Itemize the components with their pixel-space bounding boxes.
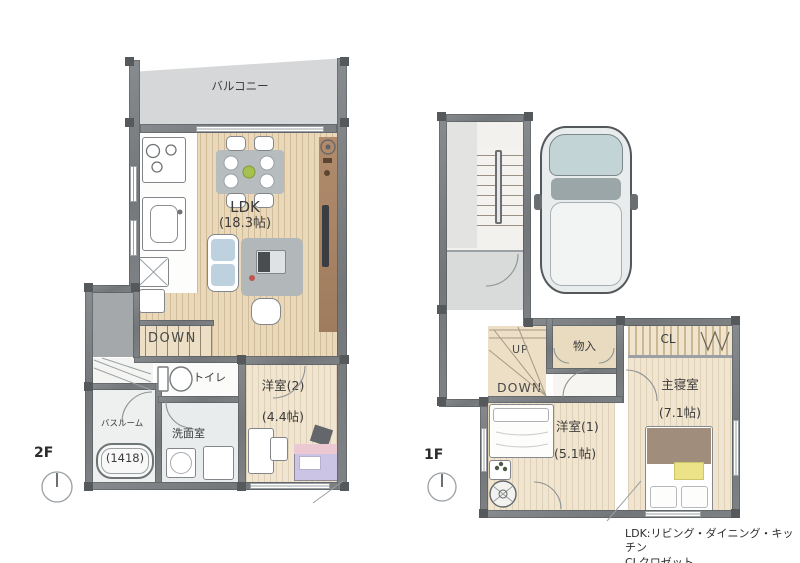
kitchen-cabinet2-icon: [139, 289, 165, 313]
wall-post: [437, 112, 446, 121]
wall: [133, 290, 140, 358]
wall: [523, 318, 740, 326]
window: [130, 166, 137, 202]
wall: [488, 396, 623, 403]
wall: [90, 383, 158, 390]
wall-post: [340, 482, 349, 491]
ldk-label: LDK: [195, 199, 295, 216]
stairs-up-label: UP: [512, 344, 529, 357]
bed2-headboard-icon: [294, 444, 338, 454]
wall: [134, 320, 214, 326]
wall-post: [84, 382, 93, 391]
wall-post: [340, 118, 349, 127]
wall: [238, 356, 246, 483]
window: [645, 511, 701, 517]
porch-floor: [447, 122, 477, 248]
floor1-label: 1F: [424, 447, 443, 463]
wall: [546, 368, 623, 374]
car-windshield-icon: [551, 178, 621, 200]
side-shelf-icon: [489, 460, 511, 480]
wall-post: [84, 283, 93, 292]
stove-icon: [142, 137, 186, 183]
bedroom1-label: 洋室(1): [556, 420, 599, 434]
dresser-icon: [270, 437, 288, 461]
laptop-screen-icon: [258, 252, 270, 272]
closet-line: [628, 355, 732, 358]
wall-post: [125, 118, 134, 127]
compass-icon-2f: [42, 472, 72, 502]
wall: [238, 356, 340, 365]
wall: [616, 318, 624, 403]
wall: [480, 510, 740, 518]
wall-post: [437, 305, 446, 314]
wall-post: [731, 509, 740, 518]
floorplan-canvas: バルコニー: [0, 0, 800, 563]
bedroom1-size-label: (5.1帖): [554, 447, 596, 461]
washroom-label: 洗面室: [172, 428, 205, 441]
dining-chair-icon: [254, 136, 274, 151]
legend-line-cl: CLクロゼット: [625, 556, 800, 563]
compass-icon-1f: [428, 473, 456, 501]
master-bedroom-size-label: (7.1帖): [628, 406, 732, 420]
storage-label: 物入: [553, 340, 616, 353]
sink-basin-icon: [150, 205, 178, 243]
car-hood-icon: [550, 202, 622, 286]
stair-rail-inner-icon: [497, 152, 500, 222]
wall-post: [524, 112, 533, 121]
wall: [546, 318, 553, 373]
window: [733, 420, 739, 476]
wall: [523, 114, 531, 326]
window: [130, 220, 137, 256]
closet-cl-label: CL: [628, 333, 708, 347]
wall-post: [340, 355, 349, 364]
master-pillow-icon: [650, 486, 677, 508]
wall-post: [131, 283, 140, 292]
hall-lower-floor: [553, 374, 616, 396]
shelf-item-icon: [324, 170, 330, 176]
wall: [439, 114, 531, 122]
void-area: [93, 293, 133, 357]
wall: [134, 356, 245, 363]
wall: [732, 318, 740, 518]
tv-icon: [322, 205, 329, 267]
bedroom2-label: 洋室(2): [248, 379, 318, 393]
wall: [158, 396, 240, 403]
sofa-cushion-icon: [211, 264, 235, 286]
wall-post: [237, 482, 246, 491]
bed1-pillow-icon: [493, 408, 549, 422]
dining-table-icon: [216, 150, 284, 194]
wall: [439, 114, 447, 407]
wall-post: [125, 57, 134, 66]
bathroom-label: バスルーム: [101, 420, 143, 430]
shelf-item-icon: [323, 158, 332, 163]
stairs-down-label: DOWN: [148, 332, 197, 347]
kitchen-cabinet-icon: [138, 257, 169, 287]
wall-post: [84, 482, 93, 491]
toilet-label: トイレ: [193, 372, 226, 385]
wall-post: [437, 397, 446, 406]
bed2-pillow-icon: [299, 456, 321, 470]
vanity-icon: [203, 446, 234, 480]
stairs-down-label: DOWN: [497, 381, 542, 395]
wall-post: [479, 509, 488, 518]
car-rear-glass-icon: [549, 134, 623, 176]
car-mirror-icon: [630, 194, 638, 210]
cushion-yellow-icon: [674, 462, 704, 480]
genkan-floor: [447, 250, 523, 310]
wall-post: [479, 397, 488, 406]
floor2-label: 2F: [34, 445, 53, 461]
sofa-cushion-icon: [211, 239, 235, 261]
window: [250, 483, 330, 489]
master-bedroom-label: 主寝室: [628, 378, 732, 392]
car-mirror-icon: [534, 194, 542, 210]
lounge-chair-icon: [251, 298, 281, 325]
wall-post: [524, 318, 533, 327]
wall-post: [237, 355, 246, 364]
bedroom2-size-label: (4.4帖): [248, 410, 318, 424]
legend-line-ldk: LDK:リビング・ダイニング・キッチン: [625, 527, 800, 556]
balcony-label: バルコニー: [170, 80, 310, 93]
window: [481, 428, 487, 472]
bathroom-size-label: (1418): [97, 452, 153, 465]
wall-post: [616, 316, 625, 325]
master-blanket-icon: [647, 428, 711, 464]
ldk-size-label: (18.3帖): [195, 217, 295, 232]
wall-post: [731, 316, 740, 325]
window: [196, 126, 324, 132]
master-pillow-icon: [681, 486, 708, 508]
washer-drum-icon: [170, 452, 192, 474]
wall-post: [340, 57, 349, 66]
dining-chair-icon: [226, 136, 246, 151]
legend: LDK:リビング・ダイニング・キッチン CLクロゼット: [625, 527, 800, 563]
